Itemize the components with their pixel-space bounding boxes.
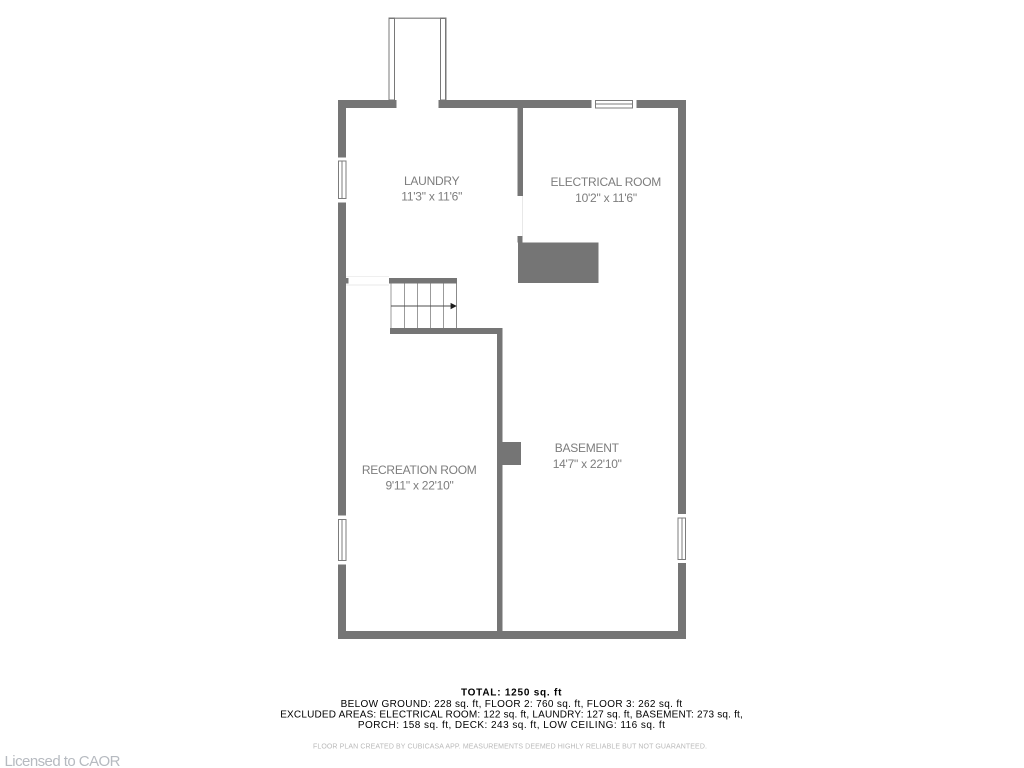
- svg-text:BASEMENT: BASEMENT: [555, 441, 620, 455]
- svg-text:11'3" x 11'6": 11'3" x 11'6": [401, 190, 462, 204]
- svg-text:10'2" x 11'6": 10'2" x 11'6": [575, 191, 637, 205]
- svg-text:TOTAL: 1250 sq. ft: TOTAL: 1250 sq. ft: [461, 688, 562, 699]
- svg-text:LAUNDRY: LAUNDRY: [404, 174, 460, 188]
- svg-text:FLOOR PLAN CREATED BY CUBICASA: FLOOR PLAN CREATED BY CUBICASA APP. MEAS…: [313, 744, 707, 751]
- svg-text:RECREATION ROOM: RECREATION ROOM: [362, 463, 477, 477]
- svg-text:BELOW GROUND: 228 sq. ft, FLOO: BELOW GROUND: 228 sq. ft, FLOOR 2: 760 s…: [341, 699, 683, 710]
- svg-text:14'7" x 22'10": 14'7" x 22'10": [553, 457, 622, 471]
- svg-text:EXCLUDED AREAS: ELECTRICAL ROO: EXCLUDED AREAS: ELECTRICAL ROOM: 122 sq.…: [280, 710, 743, 721]
- svg-text:PORCH: 158 sq. ft, DECK: 243 s: PORCH: 158 sq. ft, DECK: 243 sq. ft, LOW…: [358, 720, 666, 731]
- svg-text:9'11" x 22'10": 9'11" x 22'10": [385, 479, 453, 493]
- svg-text:Licensed to CAOR: Licensed to CAOR: [5, 753, 121, 768]
- svg-text:ELECTRICAL ROOM: ELECTRICAL ROOM: [551, 175, 662, 189]
